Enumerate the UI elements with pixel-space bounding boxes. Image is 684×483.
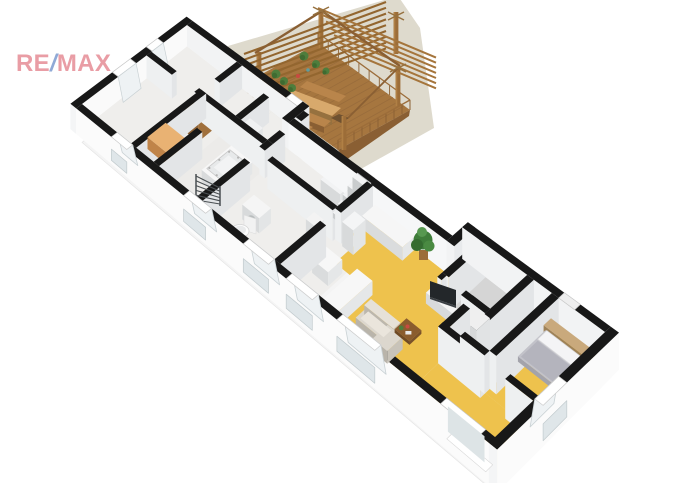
svg-text:RE/MAX: RE/MAX bbox=[16, 50, 111, 77]
